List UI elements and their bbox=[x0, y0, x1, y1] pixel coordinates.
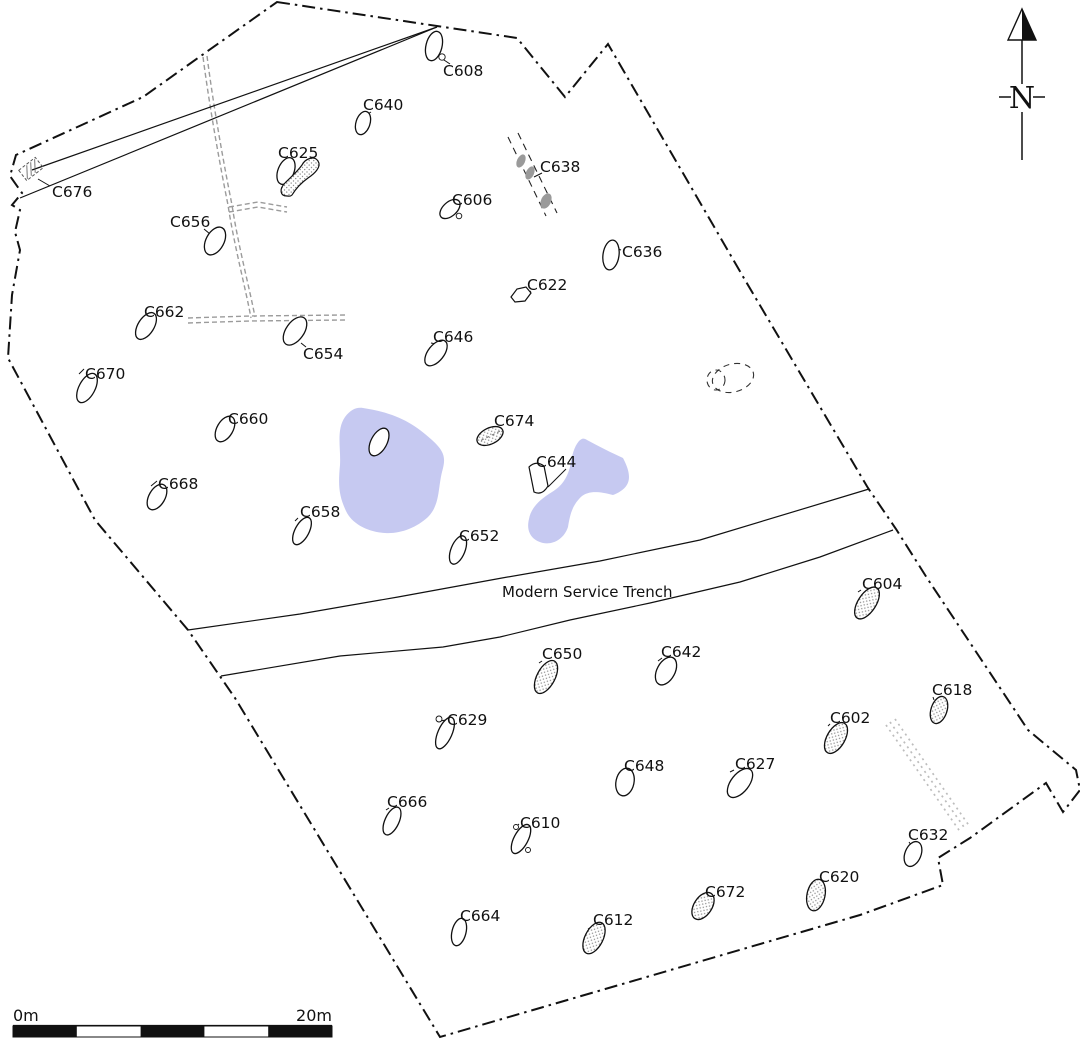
feature-label: C662 bbox=[144, 303, 184, 321]
feature-C632: C632 bbox=[901, 826, 949, 869]
feature-label: C654 bbox=[303, 345, 343, 363]
field-drain-line bbox=[207, 56, 255, 317]
feature-C666: C666 bbox=[379, 793, 427, 838]
field-drain-line bbox=[188, 320, 345, 323]
feature-C608: C608 bbox=[423, 30, 484, 80]
cut-feature-outline bbox=[601, 239, 621, 271]
feature-label: C640 bbox=[363, 96, 403, 114]
feature-C604: C604 bbox=[850, 575, 903, 623]
field-drain-line bbox=[188, 315, 345, 318]
feature-label: C627 bbox=[735, 755, 775, 773]
feature-label: C674 bbox=[494, 412, 534, 430]
feature-C652: C652 bbox=[446, 527, 500, 567]
label-leader-line bbox=[151, 481, 157, 486]
dotted-linear-feature bbox=[890, 722, 966, 830]
feature-label: C620 bbox=[819, 868, 859, 886]
north-arrow: N bbox=[999, 9, 1045, 160]
feature-C620: C620 bbox=[804, 868, 860, 913]
feature-label: C658 bbox=[300, 503, 340, 521]
feature-C610: C610 bbox=[507, 814, 560, 856]
label-leader-line bbox=[295, 518, 298, 521]
feature-label: C646 bbox=[433, 328, 473, 346]
hatched-box bbox=[19, 157, 44, 180]
feature-label: C670 bbox=[85, 365, 125, 383]
label-leader-line bbox=[858, 590, 861, 592]
label-leader-line bbox=[79, 369, 84, 374]
scale-bar-black-segment bbox=[13, 1026, 77, 1037]
feature-label: C629 bbox=[447, 711, 487, 729]
feature-label: C608 bbox=[443, 62, 483, 80]
feature-C618: C618 bbox=[927, 681, 972, 726]
feature-C636: C636 bbox=[601, 239, 662, 271]
feature-label: C672 bbox=[705, 883, 745, 901]
c638-drain-fill bbox=[514, 153, 527, 169]
inclusion-dot bbox=[439, 54, 445, 60]
feature-label: C606 bbox=[452, 191, 492, 209]
feature-label: C660 bbox=[228, 410, 268, 428]
feature-C668: C668 bbox=[143, 475, 198, 513]
dotted-linear-feature bbox=[886, 725, 961, 833]
feature-C646: C646 bbox=[420, 328, 473, 370]
field-drain-line bbox=[203, 57, 251, 318]
feature-label: C648 bbox=[624, 757, 664, 775]
feature-label: C604 bbox=[862, 575, 902, 593]
feature-label: C622 bbox=[527, 276, 567, 294]
dotted-linear-feature bbox=[895, 719, 970, 827]
feature-label: C644 bbox=[536, 453, 576, 471]
feature-label: C652 bbox=[459, 527, 499, 545]
site-plan-canvas: Modern Service TrenchC608C640C625C638C67… bbox=[0, 0, 1080, 1039]
feature-C672: C672 bbox=[687, 883, 745, 923]
inclusion-dot bbox=[514, 825, 519, 830]
feature-C612: C612 bbox=[578, 911, 633, 957]
feature-label: C664 bbox=[460, 907, 500, 925]
feature-label: C618 bbox=[932, 681, 972, 699]
scale-bar-black-segment bbox=[141, 1026, 205, 1037]
service-trench-upper-edge bbox=[188, 489, 869, 630]
hatch-line bbox=[21, 165, 34, 179]
feature-label: C650 bbox=[542, 645, 582, 663]
inclusion-dot bbox=[526, 848, 531, 853]
feature-C660: C660 bbox=[211, 410, 268, 445]
feature-C674: C674 bbox=[474, 412, 535, 449]
feature-label: C642 bbox=[661, 643, 701, 661]
dashed-feature-outline bbox=[709, 359, 757, 397]
feature-C642: C642 bbox=[651, 643, 701, 688]
feature-C656: C656 bbox=[170, 213, 230, 258]
scale-bar-right-label: 20m bbox=[296, 1006, 332, 1025]
feature-label: C636 bbox=[622, 243, 662, 261]
label-leader-line bbox=[38, 179, 50, 186]
feature-label: C638 bbox=[540, 158, 580, 176]
inclusion-dot bbox=[456, 213, 462, 219]
feature-shape bbox=[601, 239, 621, 271]
scale-bar-left-label: 0m bbox=[13, 1006, 39, 1025]
feature-C602: C602 bbox=[820, 709, 871, 757]
feature-label: C602 bbox=[830, 709, 870, 727]
label-leader-line bbox=[730, 770, 734, 772]
feature-C606: C606 bbox=[436, 191, 492, 222]
feature-C629: C629 bbox=[432, 711, 488, 751]
feature-C638: C638 bbox=[534, 158, 580, 177]
scale-bar-black-segment bbox=[268, 1026, 332, 1037]
service-trench-label: Modern Service Trench bbox=[502, 583, 673, 601]
inclusion-dot bbox=[436, 716, 442, 722]
feature-label: C632 bbox=[908, 826, 948, 844]
field-drain-line bbox=[229, 202, 287, 207]
feature-label: C666 bbox=[387, 793, 427, 811]
feature-label: C656 bbox=[170, 213, 210, 231]
north-label: N bbox=[1009, 81, 1035, 116]
pond-area bbox=[339, 408, 444, 533]
hatch-line bbox=[28, 159, 41, 173]
feature-label: C612 bbox=[593, 911, 633, 929]
feature-C648: C648 bbox=[613, 757, 664, 798]
feature-C622: C622 bbox=[511, 276, 567, 302]
feature-label: C610 bbox=[520, 814, 560, 832]
feature-C650: C650 bbox=[530, 645, 583, 697]
feature-label: C625 bbox=[278, 144, 318, 162]
feature-label: C676 bbox=[52, 183, 92, 201]
excavation-plan-svg: Modern Service TrenchC608C640C625C638C67… bbox=[0, 0, 1080, 1039]
cut-feature-outline bbox=[278, 313, 311, 350]
feature-C662: C662 bbox=[131, 303, 184, 343]
feature-shape bbox=[278, 313, 311, 350]
feature-C664: C664 bbox=[449, 907, 501, 947]
feature-C676: C676 bbox=[38, 179, 92, 201]
field-drain-line bbox=[229, 207, 287, 212]
feature-label: C668 bbox=[158, 475, 198, 493]
feature-C625: C625 bbox=[273, 144, 319, 196]
scale-bar: 0m20m bbox=[13, 1006, 332, 1037]
feature-C658: C658 bbox=[289, 503, 341, 548]
feature-C640: C640 bbox=[353, 96, 404, 137]
feature-C670: C670 bbox=[72, 365, 125, 406]
feature-C627: C627 bbox=[722, 755, 775, 802]
